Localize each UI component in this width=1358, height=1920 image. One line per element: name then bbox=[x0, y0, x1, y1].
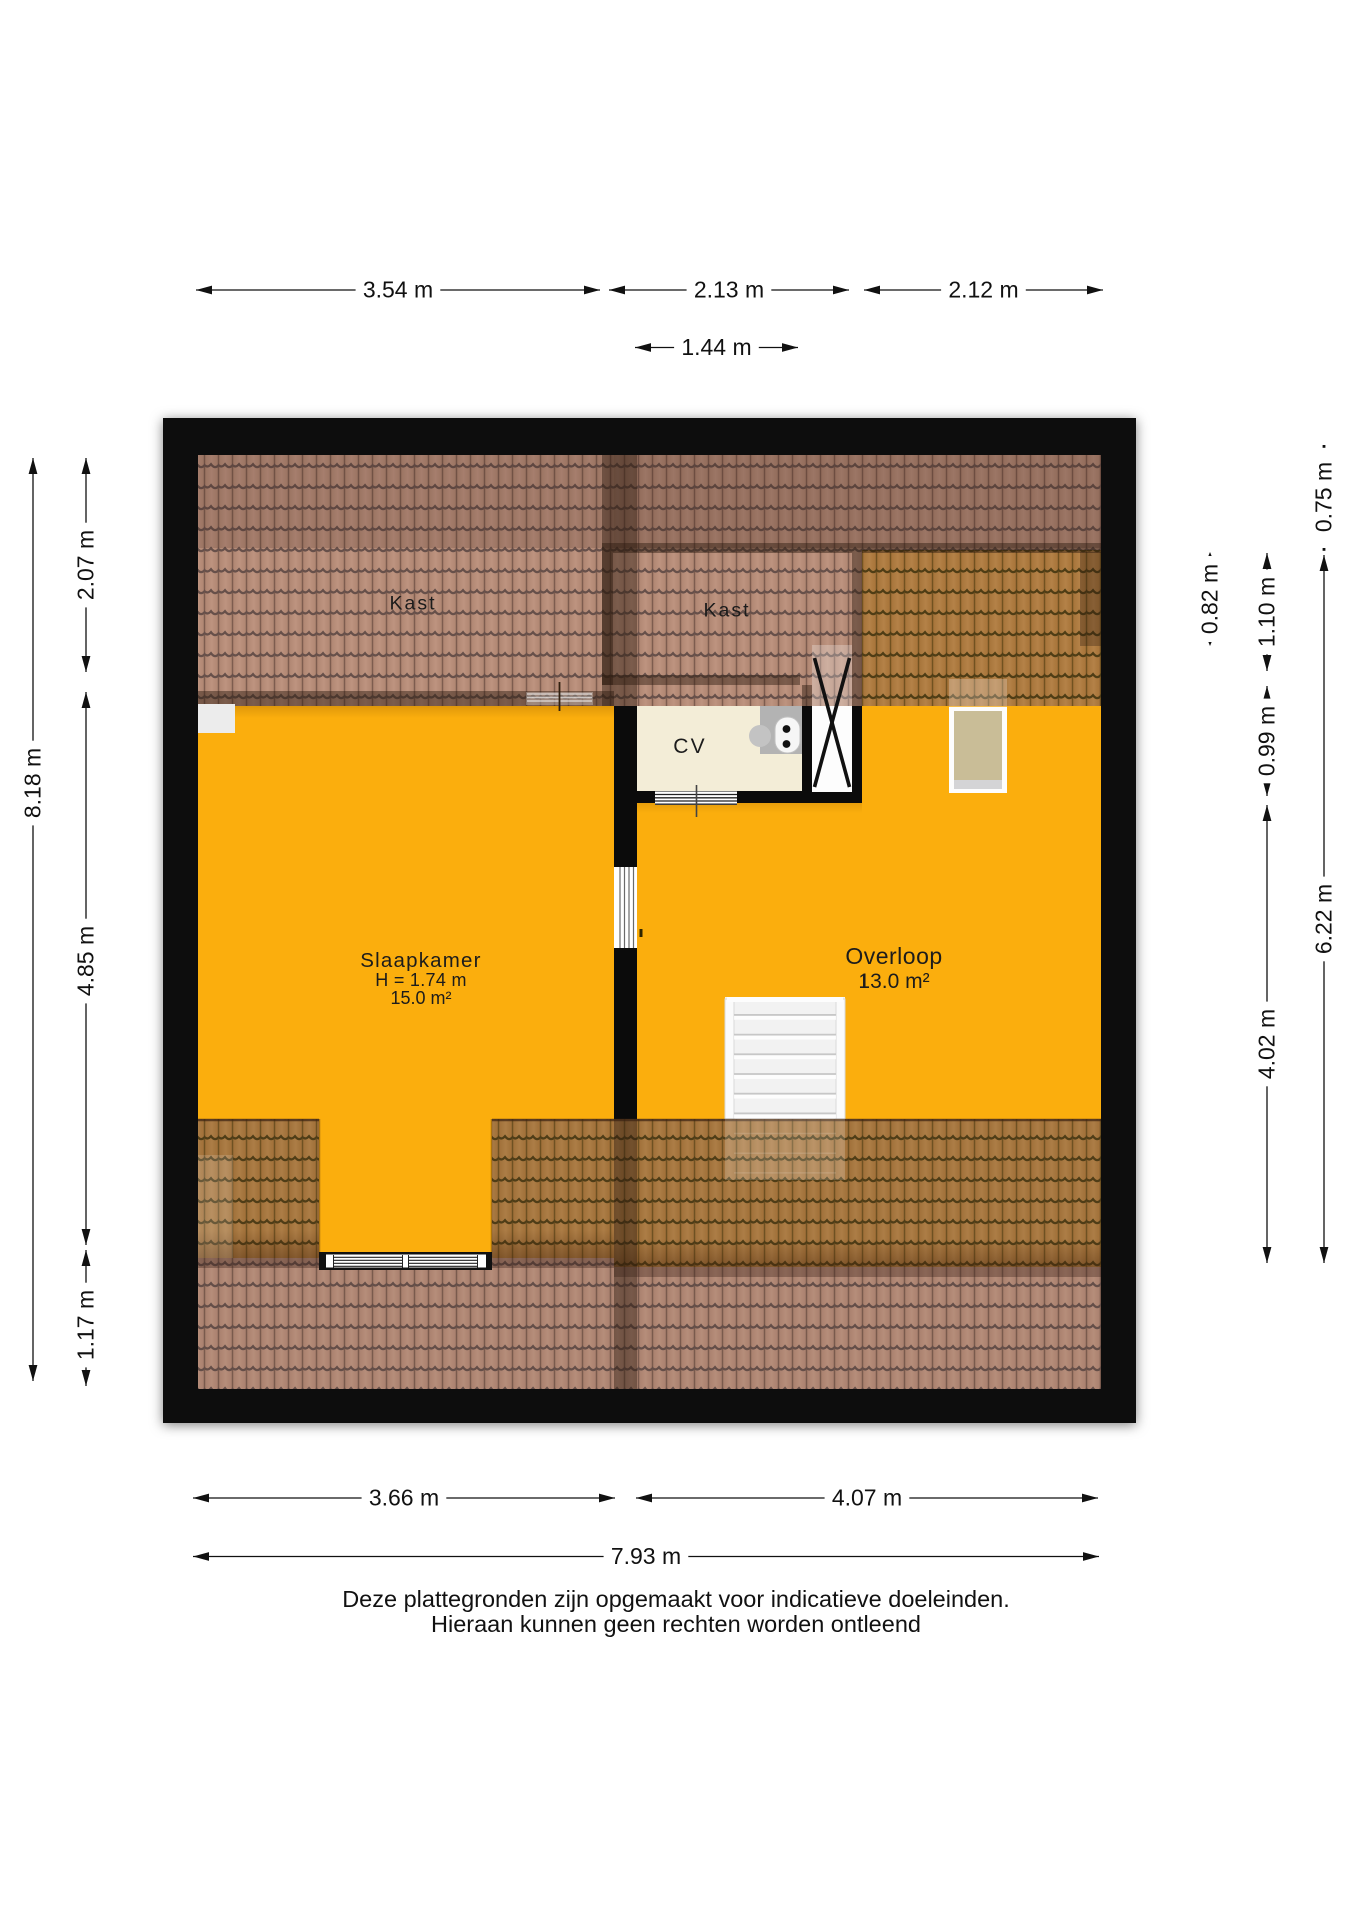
svg-text:3.54 m: 3.54 m bbox=[363, 277, 433, 303]
svg-text:2.13 m: 2.13 m bbox=[694, 277, 764, 303]
svg-text:13.0 m²: 13.0 m² bbox=[858, 970, 929, 993]
svg-text:1.10 m: 1.10 m bbox=[1254, 577, 1280, 647]
svg-text:8.18 m: 8.18 m bbox=[20, 748, 46, 818]
svg-text:2.12 m: 2.12 m bbox=[948, 277, 1018, 303]
svg-text:H = 1.74 m: H = 1.74 m bbox=[375, 970, 467, 990]
svg-text:Overloop: Overloop bbox=[845, 943, 942, 969]
svg-text:1.44 m: 1.44 m bbox=[681, 334, 751, 360]
svg-text:0.82 m: 0.82 m bbox=[1197, 564, 1223, 634]
svg-text:3.66 m: 3.66 m bbox=[369, 1485, 439, 1511]
svg-text:Hieraan kunnen geen rechten wo: Hieraan kunnen geen rechten worden ontle… bbox=[431, 1611, 921, 1637]
svg-text:1.17 m: 1.17 m bbox=[73, 1290, 99, 1360]
svg-text:4.02 m: 4.02 m bbox=[1254, 1009, 1280, 1079]
svg-text:7.93 m: 7.93 m bbox=[611, 1543, 681, 1569]
svg-text:4.85 m: 4.85 m bbox=[73, 926, 99, 996]
svg-text:Kast: Kast bbox=[703, 600, 750, 622]
svg-text:15.0 m²: 15.0 m² bbox=[390, 988, 451, 1008]
svg-text:2.07 m: 2.07 m bbox=[73, 530, 99, 600]
svg-text:Deze plattegronden zijn opgema: Deze plattegronden zijn opgemaakt voor i… bbox=[342, 1586, 1010, 1612]
svg-text:0.75 m: 0.75 m bbox=[1311, 462, 1337, 532]
svg-text:0.99 m: 0.99 m bbox=[1254, 706, 1280, 776]
svg-text:Slaapkamer: Slaapkamer bbox=[360, 949, 481, 972]
svg-text:4.07 m: 4.07 m bbox=[832, 1485, 902, 1511]
svg-text:CV: CV bbox=[673, 735, 707, 758]
svg-text:Kast: Kast bbox=[389, 593, 436, 615]
svg-text:6.22 m: 6.22 m bbox=[1311, 884, 1337, 954]
